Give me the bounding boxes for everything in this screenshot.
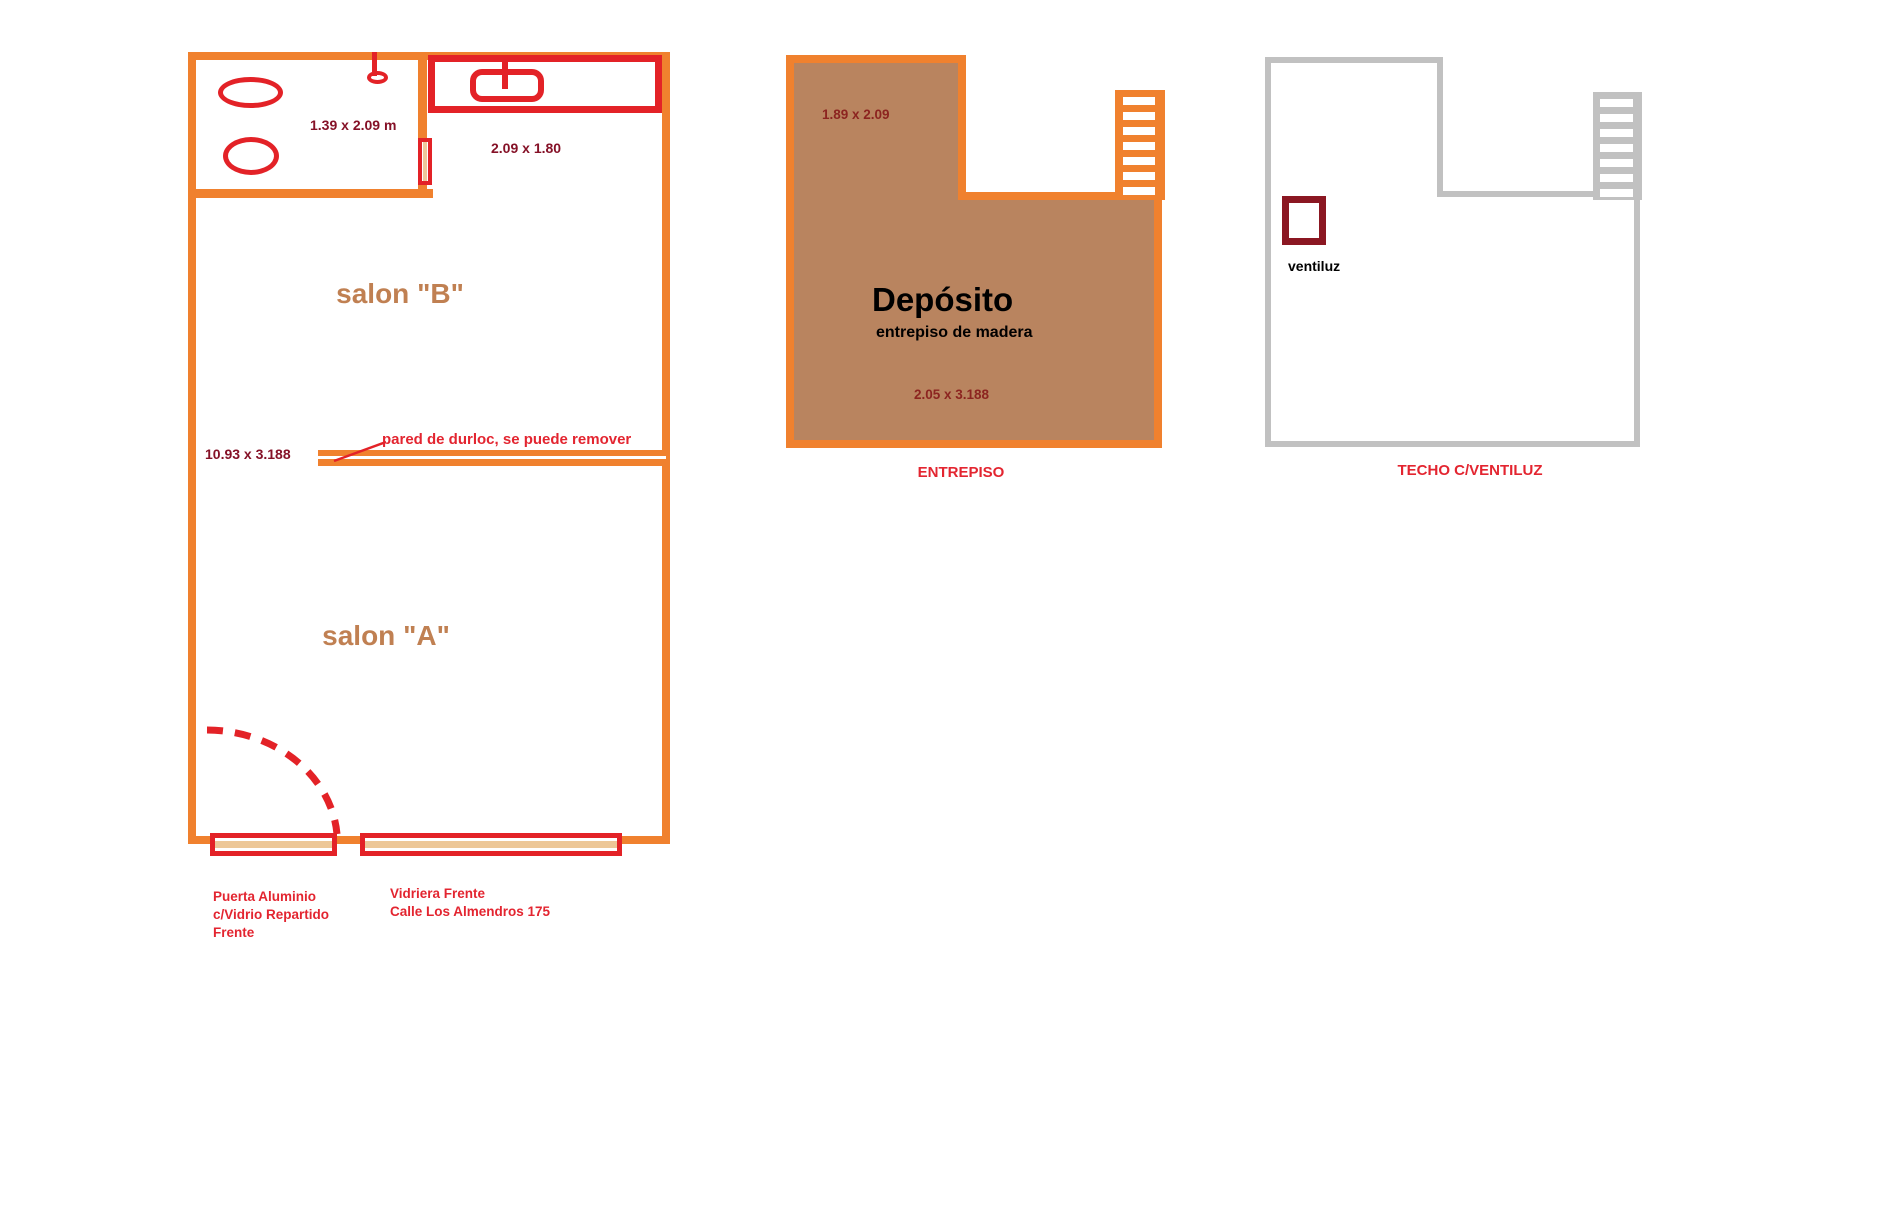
entrepiso-upper-dim-label: 1.89 x 2.09 bbox=[822, 107, 890, 122]
shower-head-icon bbox=[367, 71, 388, 84]
salon-b-label: salon "B" bbox=[280, 278, 520, 310]
partition-note-label: pared de durloc, se puede remover bbox=[382, 431, 631, 448]
bathroom-dim-label: 1.39 x 2.09 m bbox=[310, 117, 396, 133]
faucet-icon bbox=[502, 57, 508, 89]
storefront-window-rect bbox=[360, 833, 622, 856]
entrepiso-lower-dim-label: 2.05 x 3.188 bbox=[914, 387, 989, 402]
toilet-icon bbox=[218, 77, 283, 108]
bidet-icon bbox=[223, 137, 279, 175]
ventiluz-label: ventiluz bbox=[1288, 258, 1340, 274]
bathroom-wall-horizontal bbox=[188, 189, 433, 198]
stairs-icon bbox=[1115, 90, 1165, 200]
techo-caption: TECHO C/VENTILUZ bbox=[1370, 462, 1570, 479]
techo-upper-outline bbox=[1265, 57, 1443, 197]
toilette-dim-label: 2.09 x 1.80 bbox=[491, 140, 561, 156]
entry-door-caption: Puerta Aluminio c/Vidrio Repartido Frent… bbox=[213, 888, 329, 942]
entrepiso-caption: ENTREPISO bbox=[861, 464, 1061, 481]
salon-a-label: salon "A" bbox=[266, 620, 506, 652]
floorplan-drawing: 1.39 x 2.09 m 2.09 x 1.80 salon "B" pare… bbox=[0, 0, 1879, 1207]
storefront-caption: Vidriera Frente Calle Los Almendros 175 bbox=[390, 885, 550, 921]
deposito-subtitle: entrepiso de madera bbox=[876, 324, 1033, 342]
stairs-icon-gray bbox=[1593, 92, 1642, 200]
deposito-upper-area bbox=[786, 55, 966, 200]
toilette-room-outline bbox=[428, 55, 662, 113]
ventiluz-icon bbox=[1282, 196, 1326, 245]
deposito-title: Depósito bbox=[872, 281, 1013, 319]
door-leaf-icon bbox=[418, 138, 432, 185]
door-swing-arc-icon bbox=[198, 722, 348, 850]
salon-dim-label: 10.93 x 3.188 bbox=[205, 446, 291, 462]
